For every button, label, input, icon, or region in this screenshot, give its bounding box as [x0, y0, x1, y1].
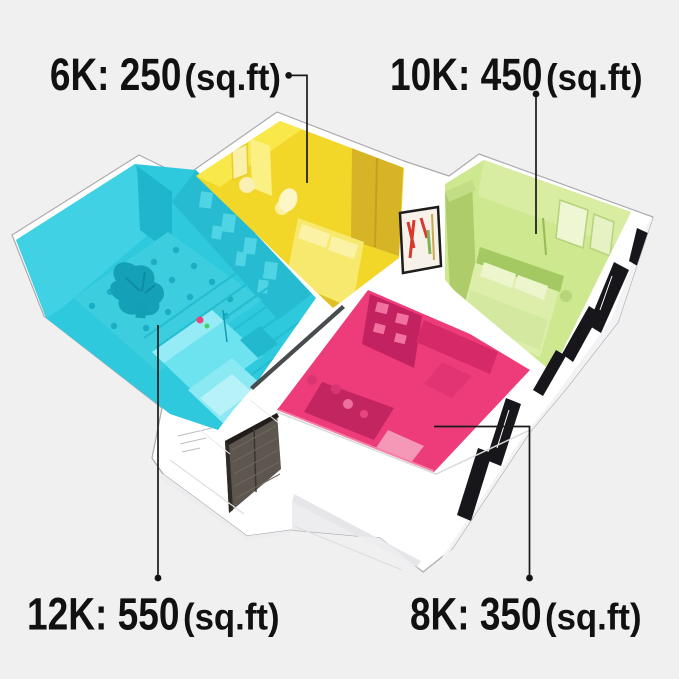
svg-text:6K: 250: 6K: 250: [50, 49, 182, 100]
svg-text:(sq.ft): (sq.ft): [183, 597, 280, 638]
svg-text:12K: 550: 12K: 550: [27, 589, 180, 640]
svg-text:(sq.ft): (sq.ft): [545, 597, 642, 638]
svg-text:10K: 450: 10K: 450: [390, 49, 543, 100]
svg-text:8K: 350: 8K: 350: [410, 589, 542, 640]
svg-text:(sq.ft): (sq.ft): [184, 57, 281, 98]
svg-text:(sq.ft): (sq.ft): [546, 57, 643, 98]
